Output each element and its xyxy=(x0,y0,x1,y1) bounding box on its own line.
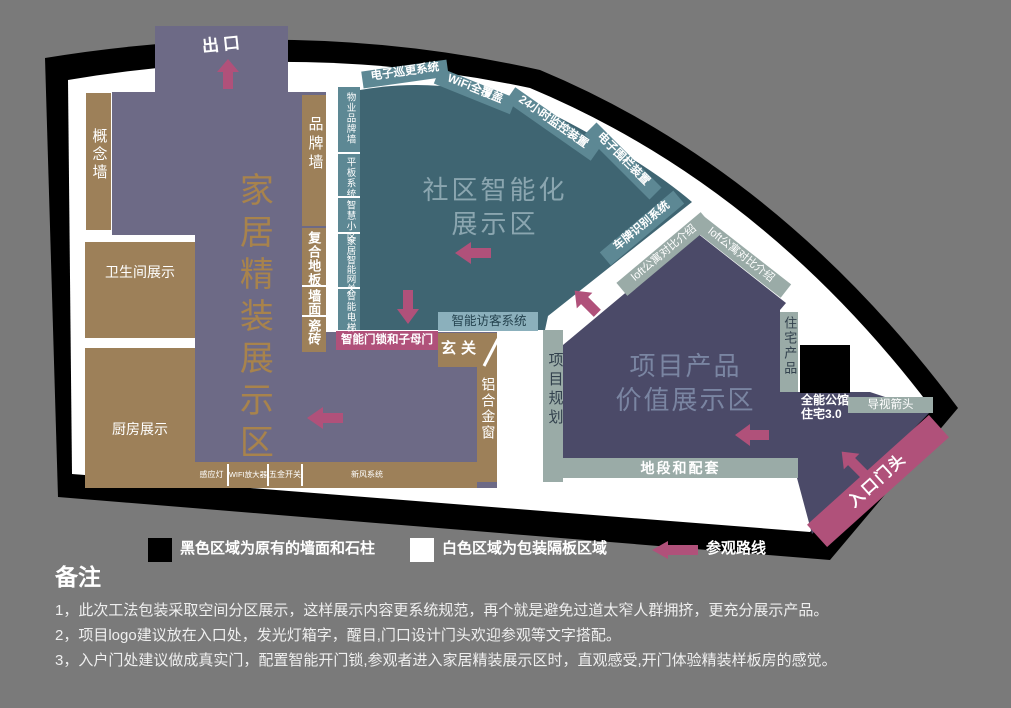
project-planning-label: 项目规划 xyxy=(546,352,563,428)
note-line-1: 1，此次工法包装采取空间分区展示，这样展示内容更系统规范，再个就是避免过道太窄人… xyxy=(55,599,985,620)
zone-value-title-line1: 项目产品 xyxy=(588,352,783,381)
kitchen-block xyxy=(85,348,195,488)
entryway-label: 玄关 xyxy=(441,341,481,358)
stone-pillar xyxy=(800,345,850,393)
composite-floor-label: 复合地板 xyxy=(306,231,320,287)
smart-wall-item-property-brand: 物业品牌墙 xyxy=(344,92,354,145)
residential-product-label: 住宅产品 xyxy=(782,316,796,376)
legend-route-label: 参观路线 xyxy=(706,541,766,558)
legend-black-label: 黑色区域为原有的墙面和石柱 xyxy=(180,541,375,558)
appliance-wifi-amplifier: WIFI放大器 xyxy=(228,471,268,479)
legend-route-arrow-icon xyxy=(652,541,698,559)
doorlock-label: 智能门锁和子母门 xyxy=(336,334,438,347)
zone-smart-title-line1: 社区智能化 xyxy=(395,176,595,205)
smart-wall-item-smart-elevator: 智能电梯 xyxy=(344,291,354,333)
tile-label: 瓷砖 xyxy=(306,319,320,345)
zone-smart-title-line2: 展示区 xyxy=(395,210,595,239)
allin-mansion-label-line2: 住宅3.0 xyxy=(801,408,842,421)
bathroom-block xyxy=(85,242,195,338)
zone-value-title-line2: 价值展示区 xyxy=(588,386,783,415)
allin-mansion-label-line1: 全能公馆 xyxy=(801,394,849,407)
zone-home-title: 家居精装展示区 xyxy=(234,172,271,466)
visitor-system-label: 智能访客系统 xyxy=(440,315,538,329)
brand-wall-label: 品牌墙 xyxy=(306,116,323,173)
guide-arrow-label: 导视箭头 xyxy=(848,399,933,412)
legend-white-label: 白色区域为包装隔板区域 xyxy=(442,541,607,558)
location-label: 地段和配套 xyxy=(563,461,798,476)
note-line-3: 3，入户门处建议做成真实门，配置智能开门锁,参观者进入家居精装展示区时，直观感受… xyxy=(55,649,985,670)
wall-surface-label: 墙面 xyxy=(306,289,320,315)
aluminum-window-label: 铝合金窗 xyxy=(480,377,495,441)
concept-wall-label: 概念墙 xyxy=(90,128,107,182)
appliance-sensor-light: 感应灯 xyxy=(195,471,228,480)
legend-white-swatch xyxy=(410,538,434,562)
kitchen-label: 厨房展示 xyxy=(85,422,195,437)
bathroom-label: 卫生间展示 xyxy=(85,265,195,280)
smart-wall-item-home-gateway: 家居智能网关 xyxy=(344,236,354,293)
notes-title: 备注 xyxy=(55,565,101,590)
appliance-fresh-air: 新风系统 xyxy=(302,471,432,480)
legend-black-swatch xyxy=(148,538,172,562)
smart-wall-item-tablet-system: 平板系统 xyxy=(344,157,354,199)
floorplan-page: 出口 家居精装展示区 社区智能化 展示区 项目产品 价值展示区 概念墙 卫生间展… xyxy=(0,0,1011,708)
appliance-hardware-switch: 五金开关 xyxy=(268,471,302,480)
note-line-2: 2，项目logo建议放在入口处，发光灯箱字，醒目,门口设计门头欢迎参观等文字搭配… xyxy=(55,624,985,645)
